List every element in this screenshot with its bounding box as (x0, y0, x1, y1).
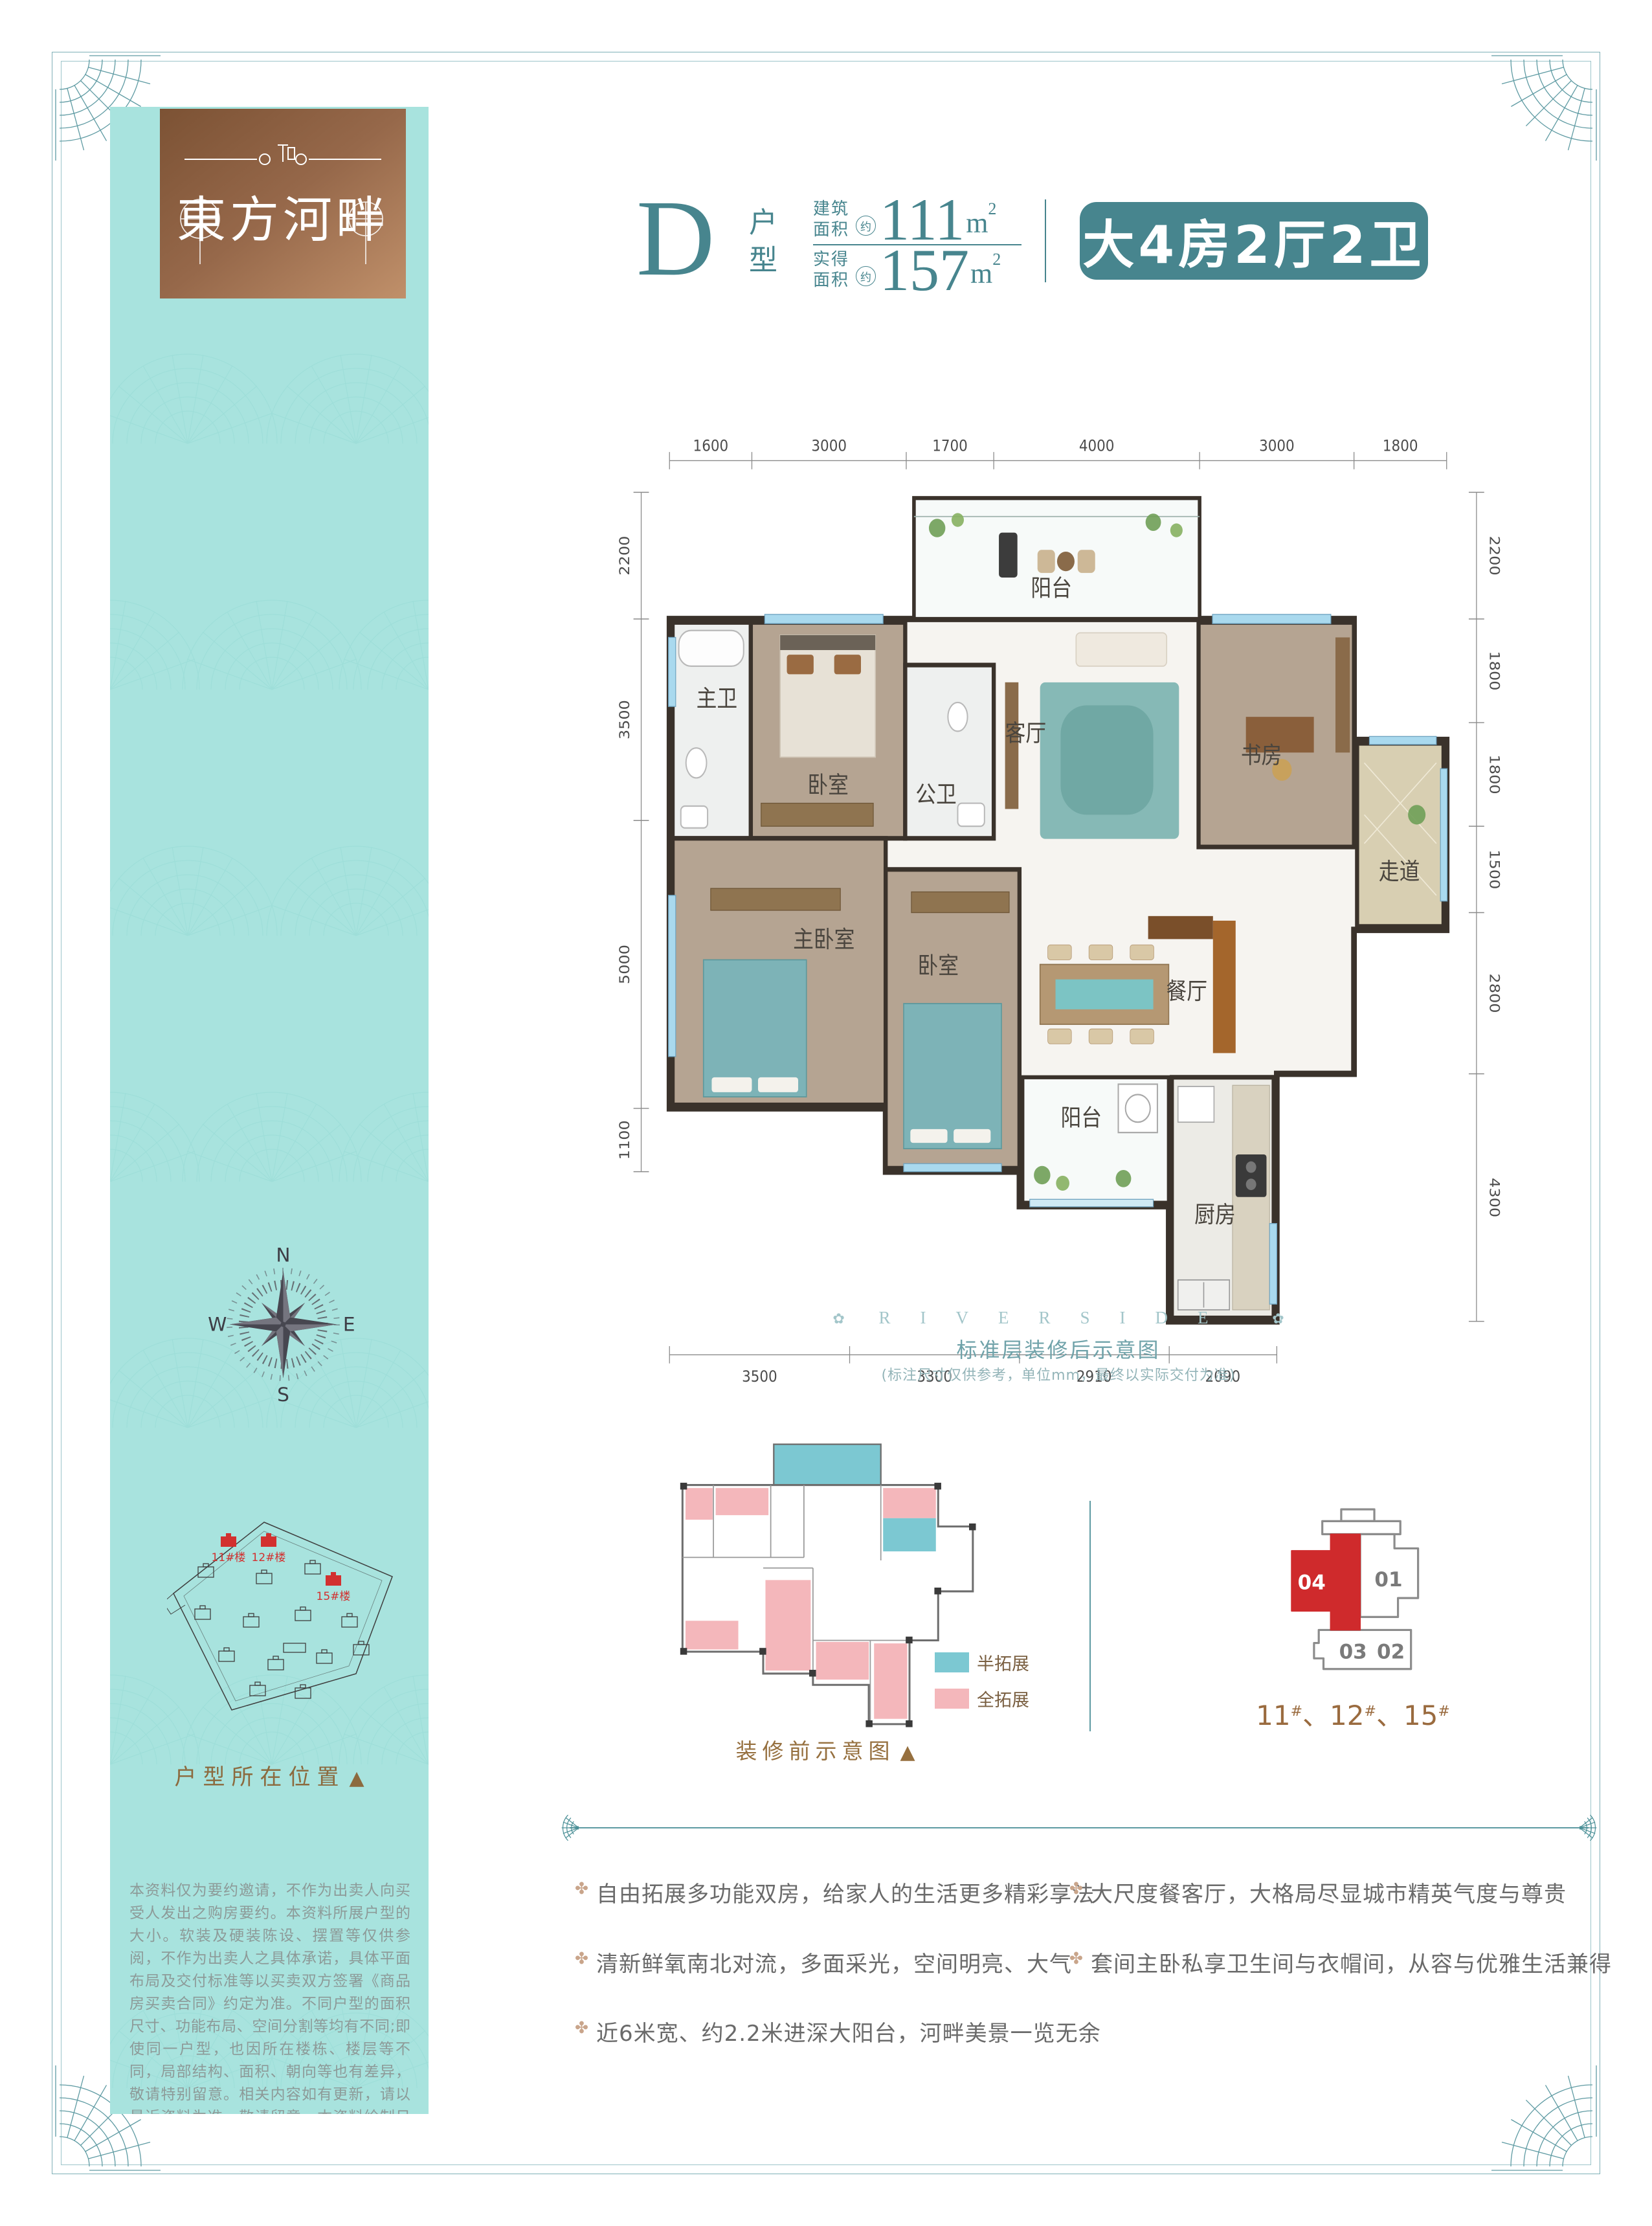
dim-left-1: 2200 (617, 536, 633, 576)
feature-text: 大尺度餐客厅，大格局尽显城市精英气度与尊贵 (1091, 1876, 1567, 1908)
unit-label-02: 02 (1377, 1640, 1405, 1663)
compass-icon: N E S W (207, 1245, 359, 1404)
site-plan-map: 11#楼 12#楼 15#楼 (167, 1517, 401, 1719)
legend-item-full: 全拓展 (935, 1686, 1029, 1711)
room-guest-bath: 公卫 (905, 665, 994, 838)
room-balcony-bottom: 阳台 (1023, 1077, 1169, 1203)
actual-area-row: 实得 面积 约 157 m2 (813, 247, 1021, 293)
dim-top-3: 1700 (932, 437, 968, 455)
room-label-corridor: 走道 (1379, 858, 1420, 884)
full-expand-label: 全拓展 (977, 1686, 1029, 1711)
room-label-bedroom2: 卧室 (917, 952, 959, 979)
floorplan: 1600 3000 1700 4000 3000 1800 2200 3500 … (592, 406, 1524, 1419)
unit-label-01: 01 (1374, 1568, 1402, 1591)
feature-text: 自由拓展多功能双房，给家人的生活更多精彩享法 (596, 1876, 1095, 1908)
brand-logo: 東方河畔 (160, 109, 406, 298)
half-expand-zone (883, 1518, 936, 1551)
fan-end-icon (1579, 1814, 1608, 1842)
room-label-study: 书房 (1241, 742, 1282, 769)
dim-right-5: 2800 (1486, 973, 1502, 1013)
half-expand-swatch (935, 1652, 969, 1672)
fan-end-icon (550, 1814, 579, 1842)
room-bedroom2: 卧室 (886, 870, 1020, 1168)
feature-item: ✤ 套间主卧私享卫生间与衣帽间，从容与优雅生活兼得 (1069, 1946, 1612, 1978)
room-label-master-bath: 主卫 (697, 685, 738, 712)
approx-badge: 约 (856, 216, 876, 236)
built-area-label-top: 建筑 (813, 199, 849, 220)
plan-title: 标准层装修后示意图 (647, 1334, 1469, 1364)
flower-bullet-icon: ✤ (575, 1879, 588, 1898)
elevator-core (1341, 1509, 1374, 1521)
site-building-label-12: 12#楼 (252, 1551, 286, 1564)
fan-corner-icon (1491, 51, 1602, 161)
built-area-label-bottom: 面积 (813, 219, 849, 241)
preplan-caption: 装修前示意图▲ (673, 1734, 977, 1765)
room-study: 书房 (1199, 622, 1354, 847)
riverside-heading: ✿ RIVERSIDE ✿ (647, 1308, 1469, 1328)
compass-west: W (208, 1312, 227, 1335)
plan-note: (标注尺寸仅供参考，单位mm，最终以实际交付为准) (647, 1364, 1469, 1384)
building-15: 15 (1403, 1700, 1438, 1731)
compass-east: E (343, 1312, 355, 1335)
feature-item: ✤ 清新鲜氧南北对流，多面采光，空间明亮、大气 (575, 1946, 1072, 1978)
logo-name: 東方河畔 (177, 191, 389, 249)
actual-area-value: 157 (880, 243, 969, 297)
built-area-row: 建筑 面积 约 111 m2 (813, 196, 1021, 243)
core-band (1323, 1521, 1401, 1534)
section-vertical-divider (1089, 1501, 1091, 1731)
dim-left-4: 1100 (617, 1120, 633, 1160)
building-12: 12 (1330, 1700, 1364, 1731)
feature-item: ✤ 自由拓展多功能双房，给家人的生活更多精彩享法 (575, 1876, 1095, 1908)
flower-bullet-icon: ✤ (575, 2018, 588, 2037)
room-label-guest-bath: 公卫 (915, 781, 957, 807)
compass-north: N (276, 1245, 290, 1266)
feature-text: 近6米宽、约2.2米进深大阳台，河畔美景一览无余 (596, 2016, 1101, 2047)
disclaimer-text: 本资料仅为要约邀请，不作为出卖人向买受人发出之购房要约。本资料所展户型的大小。软… (129, 1880, 410, 2114)
room-master-bedroom: 主卧室 (673, 838, 886, 1105)
room-master-bath: 主卫 (673, 622, 751, 838)
dim-right-1: 2200 (1486, 536, 1502, 576)
approx-badge: 约 (856, 266, 876, 286)
room-label-master-bedroom: 主卧室 (793, 926, 854, 952)
room-label-living: 客厅 (1005, 720, 1047, 747)
fan-pattern-decoration (110, 107, 429, 2114)
room-label-balcony-bottom: 阳台 (1060, 1105, 1102, 1131)
unit-type-letter: D (636, 184, 715, 293)
compass-south: S (277, 1383, 289, 1404)
legal-disclaimer: 本资料仅为要约邀请，不作为出卖人向买受人发出之购房要约。本资料所展户型的大小。软… (129, 1880, 410, 2114)
leaf-icon: ✿ (1272, 1310, 1284, 1327)
left-sidebar: 東方河畔 (110, 107, 429, 2114)
unit-label-04: 04 (1298, 1571, 1326, 1594)
half-expand-zone (774, 1445, 880, 1485)
dim-right-3: 1800 (1486, 755, 1502, 794)
actual-area-label-bottom: 面积 (813, 270, 849, 291)
full-expand-swatch (935, 1689, 969, 1709)
features-divider (570, 1827, 1589, 1828)
room-label-bedroom-top: 卧室 (807, 772, 849, 798)
unit-label-03: 03 (1339, 1640, 1367, 1663)
built-area-unit: m (966, 207, 988, 239)
triangle-icon: ▲ (349, 1767, 364, 1790)
legend-item-half: 半拓展 (935, 1650, 1029, 1675)
flower-bullet-icon: ✤ (1069, 1879, 1083, 1898)
unit-type-label: 户型 (739, 207, 781, 282)
expand-legend: 半拓展 全拓展 (935, 1650, 1029, 1722)
dim-left-3: 5000 (617, 945, 633, 984)
feature-item: ✤ 大尺度餐客厅，大格局尽显城市精英气度与尊贵 (1069, 1876, 1567, 1908)
room-label-dining: 餐厅 (1166, 978, 1207, 1004)
area-info-block: 建筑 面积 约 111 m2 实得 面积 约 157 m2 (813, 196, 1021, 293)
unit-layout-badge: 大4房2厅2卫 (1080, 202, 1428, 280)
flower-bullet-icon: ✤ (575, 1949, 588, 1968)
dim-top-4: 4000 (1079, 437, 1115, 455)
room-bedroom-top: 卧室 (751, 622, 906, 838)
room-label-kitchen: 厨房 (1194, 1201, 1236, 1228)
flower-bullet-icon: ✤ (1069, 1949, 1083, 1968)
site-caption: 户型所在位置▲ (110, 1759, 429, 1791)
dim-left-2: 3500 (617, 700, 633, 739)
actual-area-unit: m (970, 258, 992, 289)
feature-item: ✤ 近6米宽、约2.2米进深大阳台，河畔美景一览无余 (575, 2016, 1101, 2047)
built-area-unit-sup: 2 (988, 199, 996, 218)
actual-area-label-top: 实得 (813, 249, 849, 271)
dim-top-2: 3000 (811, 437, 847, 455)
brochure-page: 東方河畔 (0, 0, 1652, 2226)
room-corridor: 走道 (1357, 743, 1444, 927)
dim-top-6: 1800 (1383, 437, 1418, 455)
header-divider (1045, 199, 1046, 282)
feature-text: 套间主卧私享卫生间与衣帽间，从容与优雅生活兼得 (1091, 1946, 1612, 1978)
site-building-label-11: 11#楼 (212, 1551, 246, 1564)
room-label-balcony-top: 阳台 (1031, 575, 1072, 601)
triangle-icon: ▲ (900, 1741, 915, 1764)
room-balcony-top: 阳台 (914, 498, 1200, 619)
dim-top-1: 1600 (693, 437, 729, 455)
half-expand-label: 半拓展 (977, 1650, 1029, 1675)
site-building-label-15: 15#楼 (317, 1590, 351, 1603)
pre-decoration-plan (676, 1439, 978, 1727)
keyplan-caption: 11#、12#、15# (1211, 1694, 1495, 1733)
room-kitchen: 厨房 (1172, 1077, 1273, 1318)
fan-corner-icon (1491, 2065, 1602, 2175)
dim-right-4: 1500 (1486, 849, 1502, 889)
dim-right-6: 4300 (1486, 1178, 1502, 1217)
leaf-icon: ✿ (832, 1310, 844, 1327)
floor-key-plan: 04 01 03 02 (1266, 1502, 1443, 1682)
feature-text: 清新鲜氧南北对流，多面采光，空间明亮、大气 (596, 1946, 1072, 1978)
actual-area-unit-sup: 2 (992, 250, 1001, 269)
building-11: 11 (1256, 1700, 1290, 1731)
dim-top-5: 3000 (1259, 437, 1295, 455)
dim-right-2: 1800 (1486, 651, 1502, 690)
